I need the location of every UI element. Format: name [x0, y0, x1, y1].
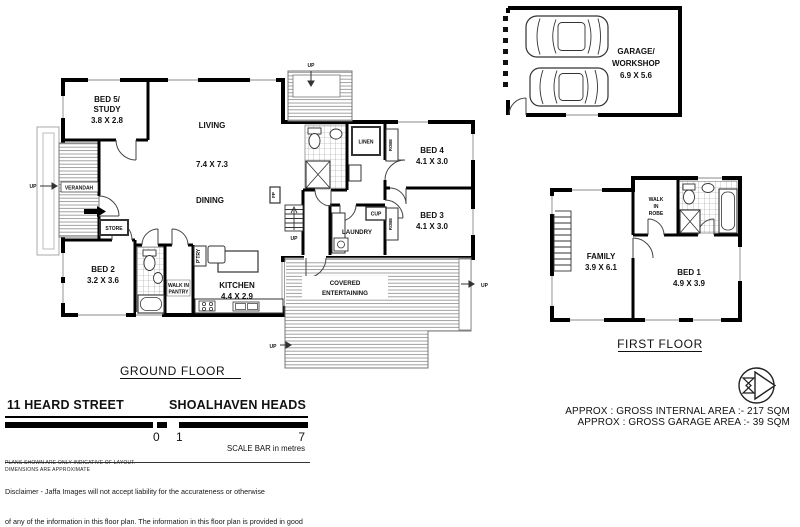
- suburb: SHOALHAVEN HEADS: [169, 398, 306, 412]
- verandah-label: VERANDAH: [65, 186, 94, 192]
- kitchen-label: KITCHEN: [219, 281, 255, 290]
- hall-robe: [349, 165, 361, 181]
- up-label: UP: [270, 344, 278, 350]
- up-label: UP: [291, 236, 299, 242]
- bed3-label: BED 3: [420, 211, 444, 220]
- ground-stairs: [285, 205, 303, 231]
- laundry-label: LAUNDRY: [342, 229, 373, 236]
- bed1-label: BED 1: [677, 268, 701, 277]
- north-arrow-icon: [739, 368, 775, 403]
- car-icon: [526, 16, 608, 57]
- living-label: LIVING: [199, 121, 226, 130]
- linen-label: LINEN: [359, 140, 374, 146]
- bed5-label: BED 5/: [94, 95, 121, 104]
- dining-label: DINING: [196, 196, 224, 205]
- verandah-steps: [37, 127, 59, 255]
- first-stairs: [554, 211, 571, 271]
- bed1-dim: 4.9 X 3.9: [673, 279, 706, 288]
- covered-entertaining-label: COVERED: [330, 280, 361, 287]
- car-icon: [530, 68, 608, 106]
- cup-label: CUP: [371, 212, 382, 218]
- kitchen-dim: 4.4 X 2.9: [221, 292, 254, 301]
- garage-plan: GARAGE/ WORKSHOP 6.9 X 5.6: [503, 8, 680, 118]
- robe-label: ROBE: [388, 218, 393, 230]
- disclaimer: Disclaimer - Jaffa Images will not accep…: [5, 468, 345, 527]
- toilet: [144, 256, 155, 271]
- title-block: 11 HEARD STREET SHOALHAVEN HEADS 0 1 7 S…: [5, 398, 308, 527]
- basin: [154, 273, 163, 284]
- svg-text:ENTERTAINING: ENTERTAINING: [322, 290, 368, 297]
- fridge: [208, 246, 225, 263]
- scale-0: 0: [153, 430, 160, 444]
- bed2-label: BED 2: [91, 265, 115, 274]
- svg-text:WORKSHOP: WORKSHOP: [612, 59, 661, 68]
- address-bar: 11 HEARD STREET SHOALHAVEN HEADS: [5, 398, 308, 418]
- ptry-label: P'TRY: [196, 248, 202, 263]
- bed2-dim: 3.2 X 3.6: [87, 276, 120, 285]
- basin: [702, 184, 714, 193]
- bed3-dim: 4.1 X 3.0: [416, 222, 449, 231]
- basin: [330, 129, 342, 139]
- ground-floor-plan: BED 5/ STUDY 3.8 X 2.8 LIVING 7.4 X 7.3 …: [30, 63, 489, 379]
- first-floor-title: FIRST FLOOR: [617, 337, 703, 351]
- family-label: FAMILY: [587, 252, 616, 261]
- robe-label: ROBE: [388, 139, 393, 151]
- store-label: STORE: [105, 226, 123, 232]
- svg-text:PANTRY: PANTRY: [169, 290, 190, 296]
- garage-door-dashes: [503, 16, 508, 87]
- walk-in-robe-label: WALK: [649, 197, 664, 203]
- gross-garage-area: APPROX : GROSS GARAGE AREA :- 39 SQM: [530, 418, 790, 429]
- plans-note: PLANS SHOWN ARE ONLY INDICATIVE OF LAYOU…: [5, 460, 136, 473]
- covered-entertaining-deck: [285, 258, 471, 368]
- area-summary: APPROX : GROSS INTERNAL AREA :- 217 SQM …: [530, 407, 790, 428]
- svg-text:IN: IN: [654, 204, 659, 210]
- svg-text:ROBE: ROBE: [649, 211, 664, 217]
- first-floor-plan: FAMILY 3.9 X 6.1 BED 1 4.9 X 3.9 WALK IN…: [549, 175, 743, 352]
- garage-dim: 6.9 X 5.6: [620, 71, 653, 80]
- gross-internal-area: APPROX : GROSS INTERNAL AREA :- 217 SQM: [530, 407, 790, 418]
- garage-label: GARAGE/: [617, 47, 655, 56]
- toilet: [309, 134, 320, 149]
- bed5-dim: 3.8 X 2.8: [91, 116, 124, 125]
- scale-7: 7: [298, 430, 305, 444]
- scale-1: 1: [176, 430, 183, 444]
- scale-caption: SCALE BAR in metres: [227, 444, 305, 453]
- up-label: UP: [308, 63, 316, 69]
- toilet: [684, 190, 695, 204]
- street-address: 11 HEARD STREET: [7, 398, 124, 412]
- svg-text:STUDY: STUDY: [93, 105, 121, 114]
- scale-numbers: 0 1 7 SCALE BAR in metres PLANS SHOWN AR…: [5, 428, 308, 450]
- pantry-label: WALK IN: [168, 283, 189, 289]
- fireplace-label: FP: [271, 192, 276, 198]
- bed4-label: BED 4: [420, 146, 444, 155]
- living-dim: 7.4 X 7.3: [196, 160, 229, 169]
- bed4-dim: 4.1 X 3.0: [416, 157, 449, 166]
- ground-floor-title: GROUND FLOOR: [120, 364, 225, 378]
- up-label: UP: [30, 184, 38, 190]
- up-label: UP: [481, 283, 489, 289]
- floor-plan-page: BED 5/ STUDY 3.8 X 2.8 LIVING 7.4 X 7.3 …: [0, 0, 800, 527]
- family-dim: 3.9 X 6.1: [585, 263, 618, 272]
